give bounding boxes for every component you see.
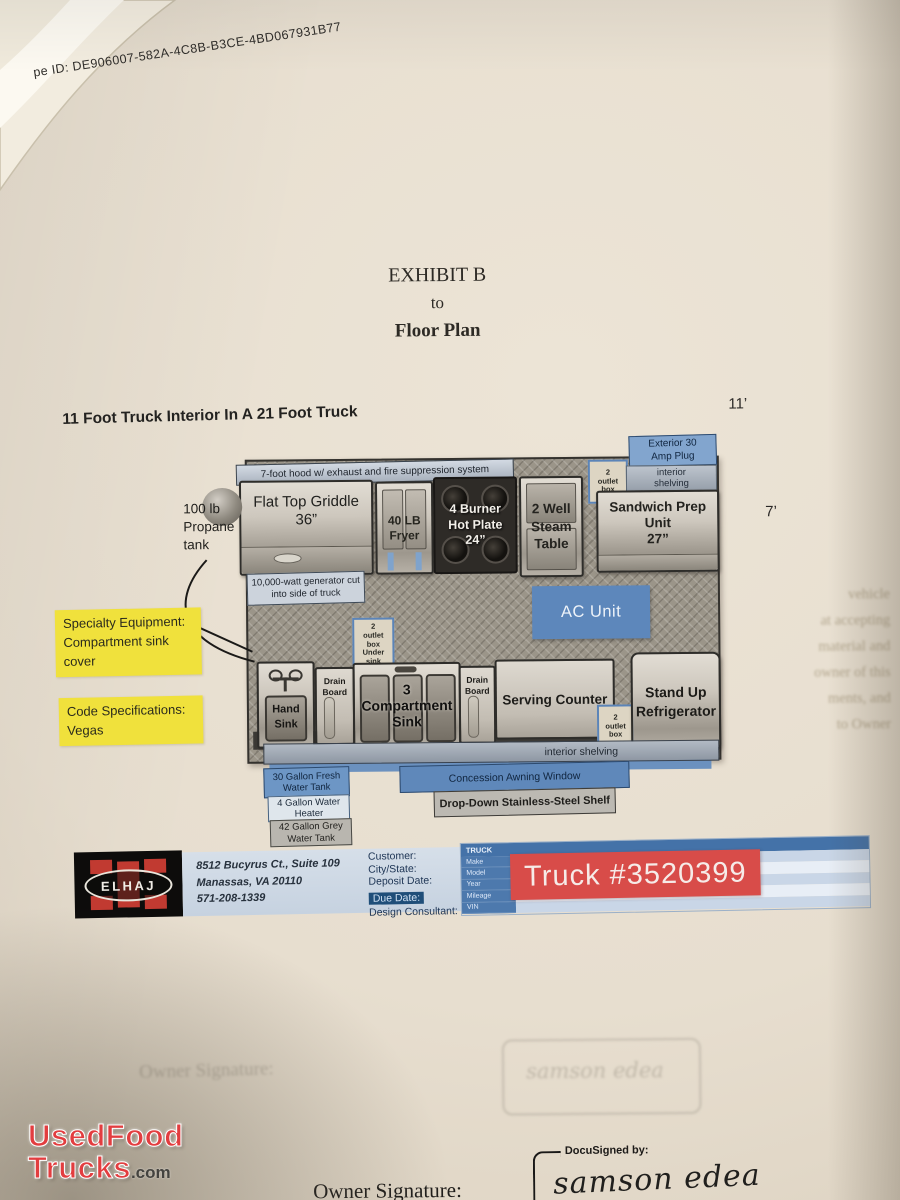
bleed-line: owner of this [723, 659, 891, 686]
stand-up-refrigerator: Stand Up Refrigerator [630, 652, 721, 753]
drain-board-label: Drain Board [317, 671, 353, 703]
griddle-label: Flat Top Griddle 36” [241, 482, 372, 541]
plan-heading: 11 Foot Truck Interior In A 21 Foot Truc… [62, 403, 358, 429]
fryer-label: 40 LB Fryer [377, 483, 432, 572]
drain-groove-icon [468, 696, 479, 738]
propane-label: 100 lb Propane tank [183, 500, 235, 555]
elhaj-logo: ELHAJ [74, 850, 183, 918]
due-date-field-label: Due Date: [369, 892, 425, 906]
interior-shelving-top: interior shelving [626, 465, 717, 492]
serving-counter-label: Serving Counter [502, 691, 607, 707]
steam-table-label: 2 Well Steam Table [521, 478, 582, 576]
watermark-suffix: .com [131, 1163, 171, 1183]
document-photo: pe ID: DE906007-582A-4C8B-B3CE-4BD067931… [0, 0, 900, 1200]
code-specifications-note: Code Specifications: Vegas [59, 695, 204, 745]
watermark-line2: Trucks [28, 1150, 131, 1186]
truck-number-banner: Truck #3520399 [510, 849, 761, 900]
watermark-line1: UsedFood [28, 1118, 184, 1154]
hot-plate: 4 Burner Hot Plate 24” [433, 476, 518, 574]
bleed-line: material and [722, 633, 890, 660]
drop-down-shelf-label: Drop-Down Stainless-Steel Shelf [439, 794, 610, 810]
interior-shelving-bottom: interior shelving [263, 740, 719, 765]
exhibit-title: EXHIBIT B [297, 263, 577, 288]
owner-signature-label: Owner Signature: [313, 1178, 462, 1200]
vin-row-label: VIN [462, 902, 516, 914]
signature-name: samson edea [552, 1158, 761, 1200]
sandwich-prep-label: Sandwich Prep Unit 27” [598, 492, 718, 555]
ac-unit: AC Unit [532, 585, 650, 639]
three-compartment-sink: 3 Compartment Sink [353, 662, 462, 749]
floor-plan-title: Floor Plan [298, 319, 578, 343]
width-dimension: 11’ [728, 395, 747, 412]
bleedthrough-text: vehicle at accepting material and owner … [722, 581, 891, 738]
comp-sink-label: 3 Compartment Sink [355, 664, 460, 747]
exhibit-title-to: to [297, 292, 577, 314]
awning-label: Concession Awning Window [449, 769, 581, 784]
logo-text: ELHAJ [101, 877, 156, 893]
bleed-line: to Owner [723, 711, 891, 738]
truck-number-text: Truck #3520399 [524, 856, 747, 893]
sandwich-prep-unit: Sandwich Prep Unit 27” [596, 490, 720, 573]
drain-board-left: Drain Board [315, 667, 356, 745]
company-address: 8512 Bucyrus Ct., Suite 109 Manassas, VA… [196, 855, 362, 908]
hand-sink: Hand Sink [257, 661, 316, 749]
drain-board-label: Drain Board [461, 670, 494, 702]
hot-plate-label: 4 Burner Hot Plate 24” [435, 478, 516, 572]
usedfoodtrucks-watermark: UsedFood Trucks .com [28, 1118, 184, 1186]
footer-band: ELHAJ 8512 Bucyrus Ct., Suite 109 Manass… [74, 835, 869, 922]
depth-dimension: 7’ [765, 503, 777, 520]
ghost-signature-name: samson edea [526, 1058, 664, 1083]
sandwich-prep-base [599, 554, 718, 571]
grey-water-tank: 42 Gallon Grey Water Tank [270, 818, 353, 847]
ghost-signature-box: samson edea [502, 1038, 702, 1116]
refrigerator-label: Stand Up Refrigerator [636, 683, 716, 721]
ghost-owner-signature: Owner Signature: [139, 1058, 274, 1084]
specialty-equipment-note: Specialty Equipment: Compartment sink co… [55, 607, 202, 676]
bleed-line: at accepting [722, 607, 890, 634]
envelope-id: pe ID: DE906007-582A-4C8B-B3CE-4BD067931… [32, 20, 342, 80]
exterior-amp-plug: Exterior 30 Amp Plug [628, 434, 717, 467]
drain-groove-icon [324, 697, 335, 739]
docusign-label: DocuSigned by: [565, 1144, 649, 1157]
bleed-line: ments, and [723, 685, 891, 712]
drain-board-right: Drain Board [459, 666, 497, 744]
steam-table: 2 Well Steam Table [519, 476, 584, 578]
fryer: 40 LB Fryer [375, 481, 434, 575]
drop-down-shelf: Drop-Down Stainless-Steel Shelf [433, 787, 616, 817]
generator-label: 10,000-watt generator cut into side of t… [246, 571, 365, 606]
interior-shelving-bottom-label: interior shelving [544, 745, 618, 758]
bleed-line: vehicle [722, 581, 890, 608]
hand-sink-label: Hand Sink [259, 687, 314, 746]
